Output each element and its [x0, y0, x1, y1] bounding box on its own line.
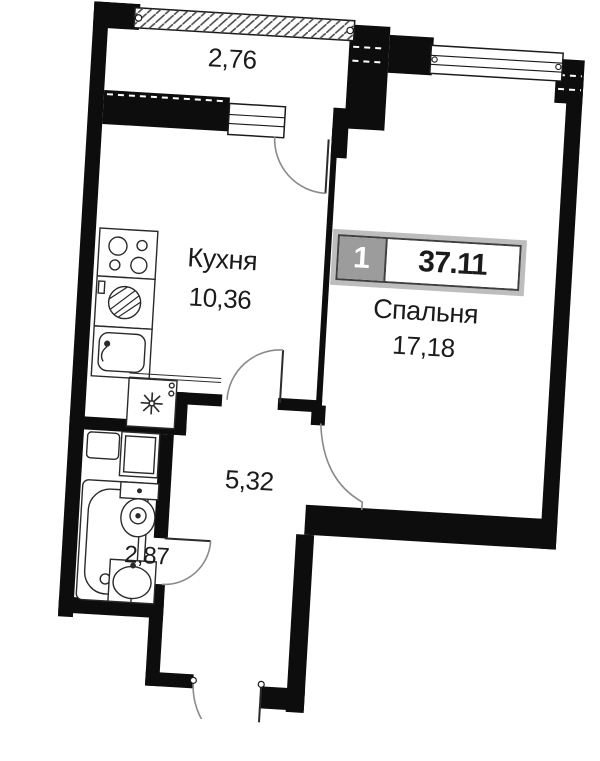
- hallway-area-label: 5,32: [209, 465, 290, 497]
- kitchen-window: [228, 103, 286, 137]
- wall: [260, 686, 305, 711]
- window-icon: [430, 45, 563, 81]
- kitchen-door: [227, 347, 283, 403]
- stove-icon: [97, 228, 158, 279]
- glazing-hatch: [134, 8, 355, 41]
- window-icon: [228, 103, 286, 137]
- floor-plan-drawing: [0, 0, 599, 740]
- bedroom-window: [430, 45, 563, 81]
- floor-plan: 2,76 Кухня 10,36 1 37.11 Спальня 17,18 5…: [0, 0, 599, 740]
- entrance-door: [186, 677, 264, 740]
- total-area-value: 37.11: [385, 239, 519, 289]
- door-arc-icon: [272, 136, 329, 193]
- balcony-area-label: 2,76: [182, 43, 283, 76]
- rooms-count-badge: 1: [337, 236, 387, 281]
- wall: [278, 398, 323, 413]
- doors: [152, 131, 383, 740]
- wall: [93, 1, 140, 30]
- bathroom-fixtures: [76, 430, 164, 604]
- wall: [286, 534, 315, 713]
- balcony-glazing: [134, 8, 355, 41]
- floor-plan-image: 2,76 Кухня 10,36 1 37.11 Спальня 17,18 5…: [0, 0, 600, 761]
- window-end-dot: [556, 64, 561, 69]
- washing-machine-icon: [94, 276, 155, 329]
- glazing-end-dot: [347, 27, 354, 34]
- kitchen-sink-icon: [91, 326, 152, 379]
- bathroom-area-label: 2,87: [106, 541, 187, 571]
- door-hinge-dot: [258, 681, 264, 687]
- cabinet-icon: [119, 432, 160, 478]
- door-arc-icon: [189, 682, 261, 740]
- toilet-icon: [118, 482, 159, 538]
- window-end-dot: [432, 57, 437, 62]
- bedroom-door: [316, 423, 367, 510]
- door-arc-icon: [316, 423, 367, 510]
- glazing-end-dot: [135, 15, 142, 22]
- wall: [540, 77, 584, 549]
- shelf-icon: [86, 432, 119, 460]
- wall: [145, 672, 194, 689]
- door-hinge-dot: [190, 677, 196, 683]
- wall: [102, 90, 230, 131]
- door-arc-icon: [227, 347, 283, 403]
- wall: [388, 35, 434, 76]
- wall: [304, 505, 557, 550]
- balcony-door: [272, 136, 329, 193]
